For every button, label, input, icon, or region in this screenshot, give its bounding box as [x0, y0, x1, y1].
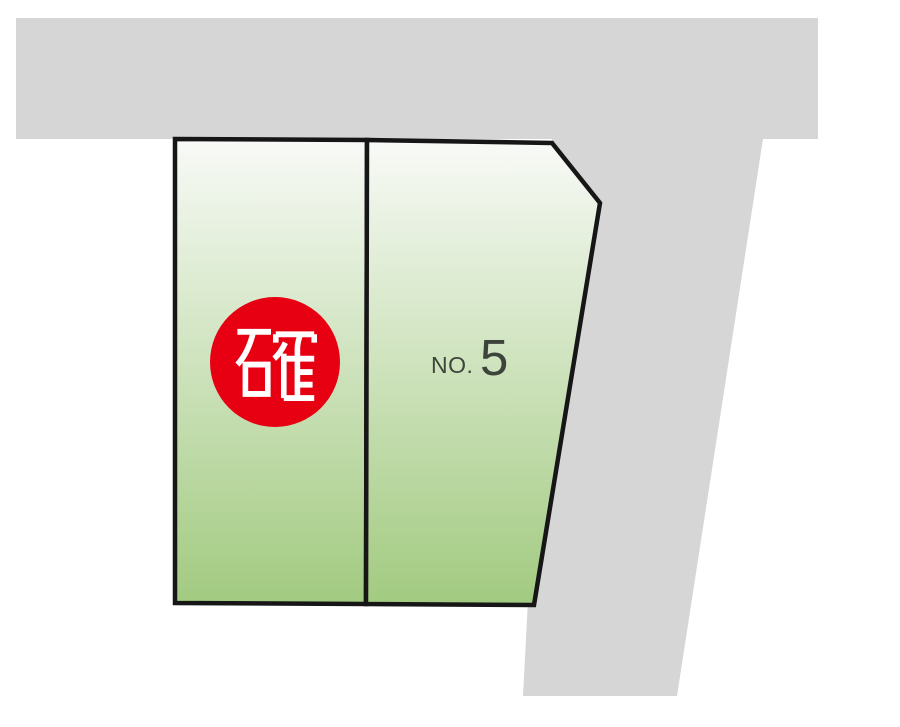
- lot-number-prefix: NO.: [431, 352, 473, 378]
- lot-number: 5: [480, 329, 508, 386]
- plot-diagram: 確 NO. 5: [0, 0, 900, 727]
- sold-badge-text: 確: [233, 316, 317, 410]
- top-road: [16, 18, 818, 139]
- plot-diagram-canvas: 確 NO. 5: [0, 0, 900, 727]
